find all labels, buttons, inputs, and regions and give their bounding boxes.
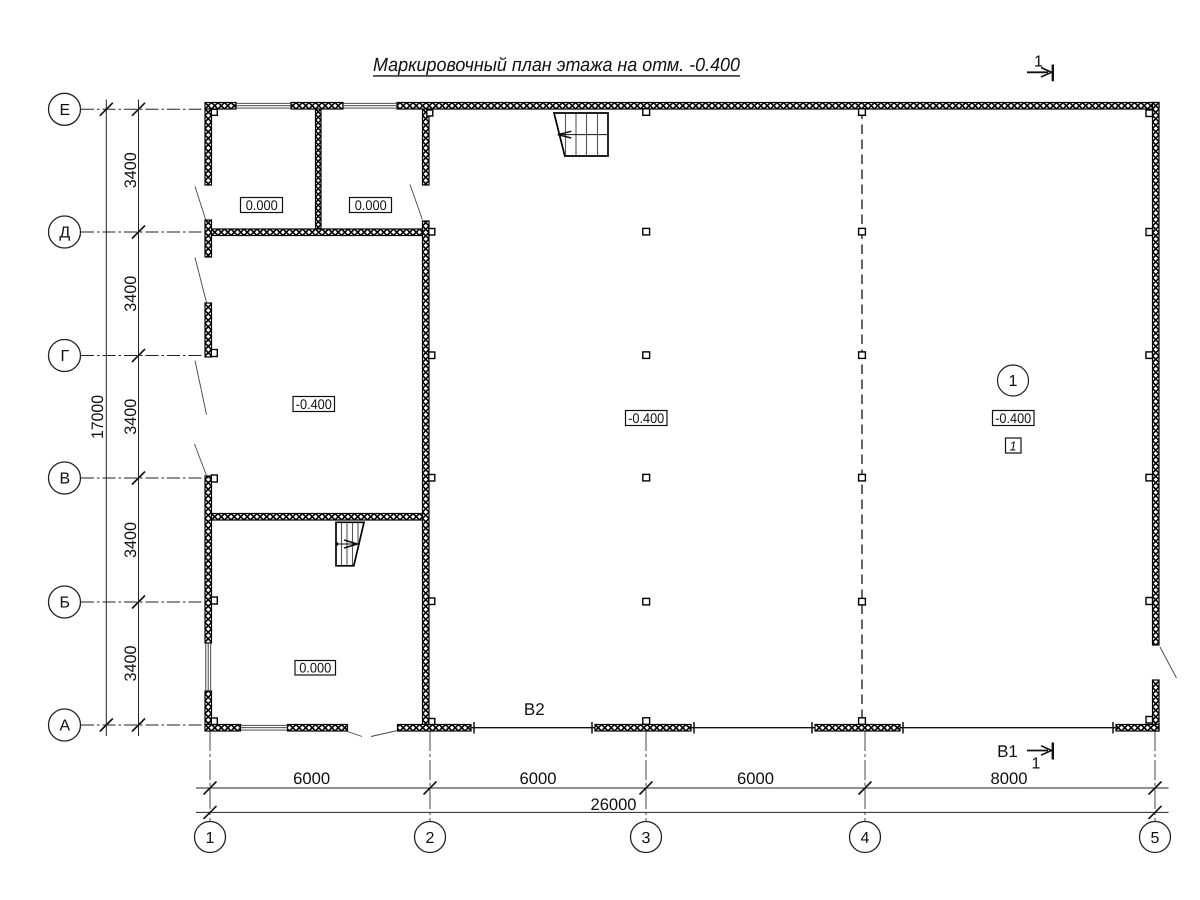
- svg-text:3400: 3400: [121, 152, 140, 188]
- svg-text:1: 1: [206, 830, 215, 847]
- svg-text:26000: 26000: [591, 795, 637, 814]
- svg-text:Д: Д: [59, 225, 70, 242]
- svg-text:0.000: 0.000: [355, 197, 387, 213]
- svg-text:В: В: [59, 471, 70, 488]
- svg-text:-0.400: -0.400: [995, 410, 1031, 426]
- svg-text:В2: В2: [524, 700, 545, 719]
- svg-text:1: 1: [1034, 53, 1043, 70]
- svg-text:Е: Е: [59, 102, 70, 119]
- svg-text:4: 4: [861, 830, 870, 847]
- svg-text:0.000: 0.000: [299, 660, 331, 676]
- svg-text:1: 1: [1009, 438, 1016, 453]
- svg-text:5: 5: [1151, 830, 1160, 847]
- svg-text:-0.400: -0.400: [628, 410, 664, 426]
- svg-text:-0.400: -0.400: [296, 396, 332, 412]
- svg-text:3400: 3400: [121, 276, 140, 312]
- svg-text:3400: 3400: [121, 646, 140, 682]
- svg-text:1: 1: [1032, 756, 1041, 773]
- svg-text:Б: Б: [60, 595, 71, 612]
- svg-text:3400: 3400: [121, 399, 140, 435]
- svg-text:17000: 17000: [88, 395, 107, 439]
- svg-text:1: 1: [1009, 373, 1018, 390]
- svg-text:8000: 8000: [991, 769, 1028, 788]
- svg-text:Маркировочный план этажа на от: Маркировочный план этажа на отм. -0.400: [373, 55, 740, 76]
- svg-text:А: А: [59, 718, 70, 735]
- svg-text:3400: 3400: [121, 522, 140, 558]
- svg-text:6000: 6000: [737, 769, 774, 788]
- svg-text:В1: В1: [997, 742, 1018, 761]
- svg-text:2: 2: [426, 830, 435, 847]
- svg-text:0.000: 0.000: [246, 197, 278, 213]
- svg-text:3: 3: [642, 830, 651, 847]
- svg-text:6000: 6000: [293, 769, 330, 788]
- svg-text:6000: 6000: [520, 769, 557, 788]
- svg-text:Г: Г: [60, 348, 69, 365]
